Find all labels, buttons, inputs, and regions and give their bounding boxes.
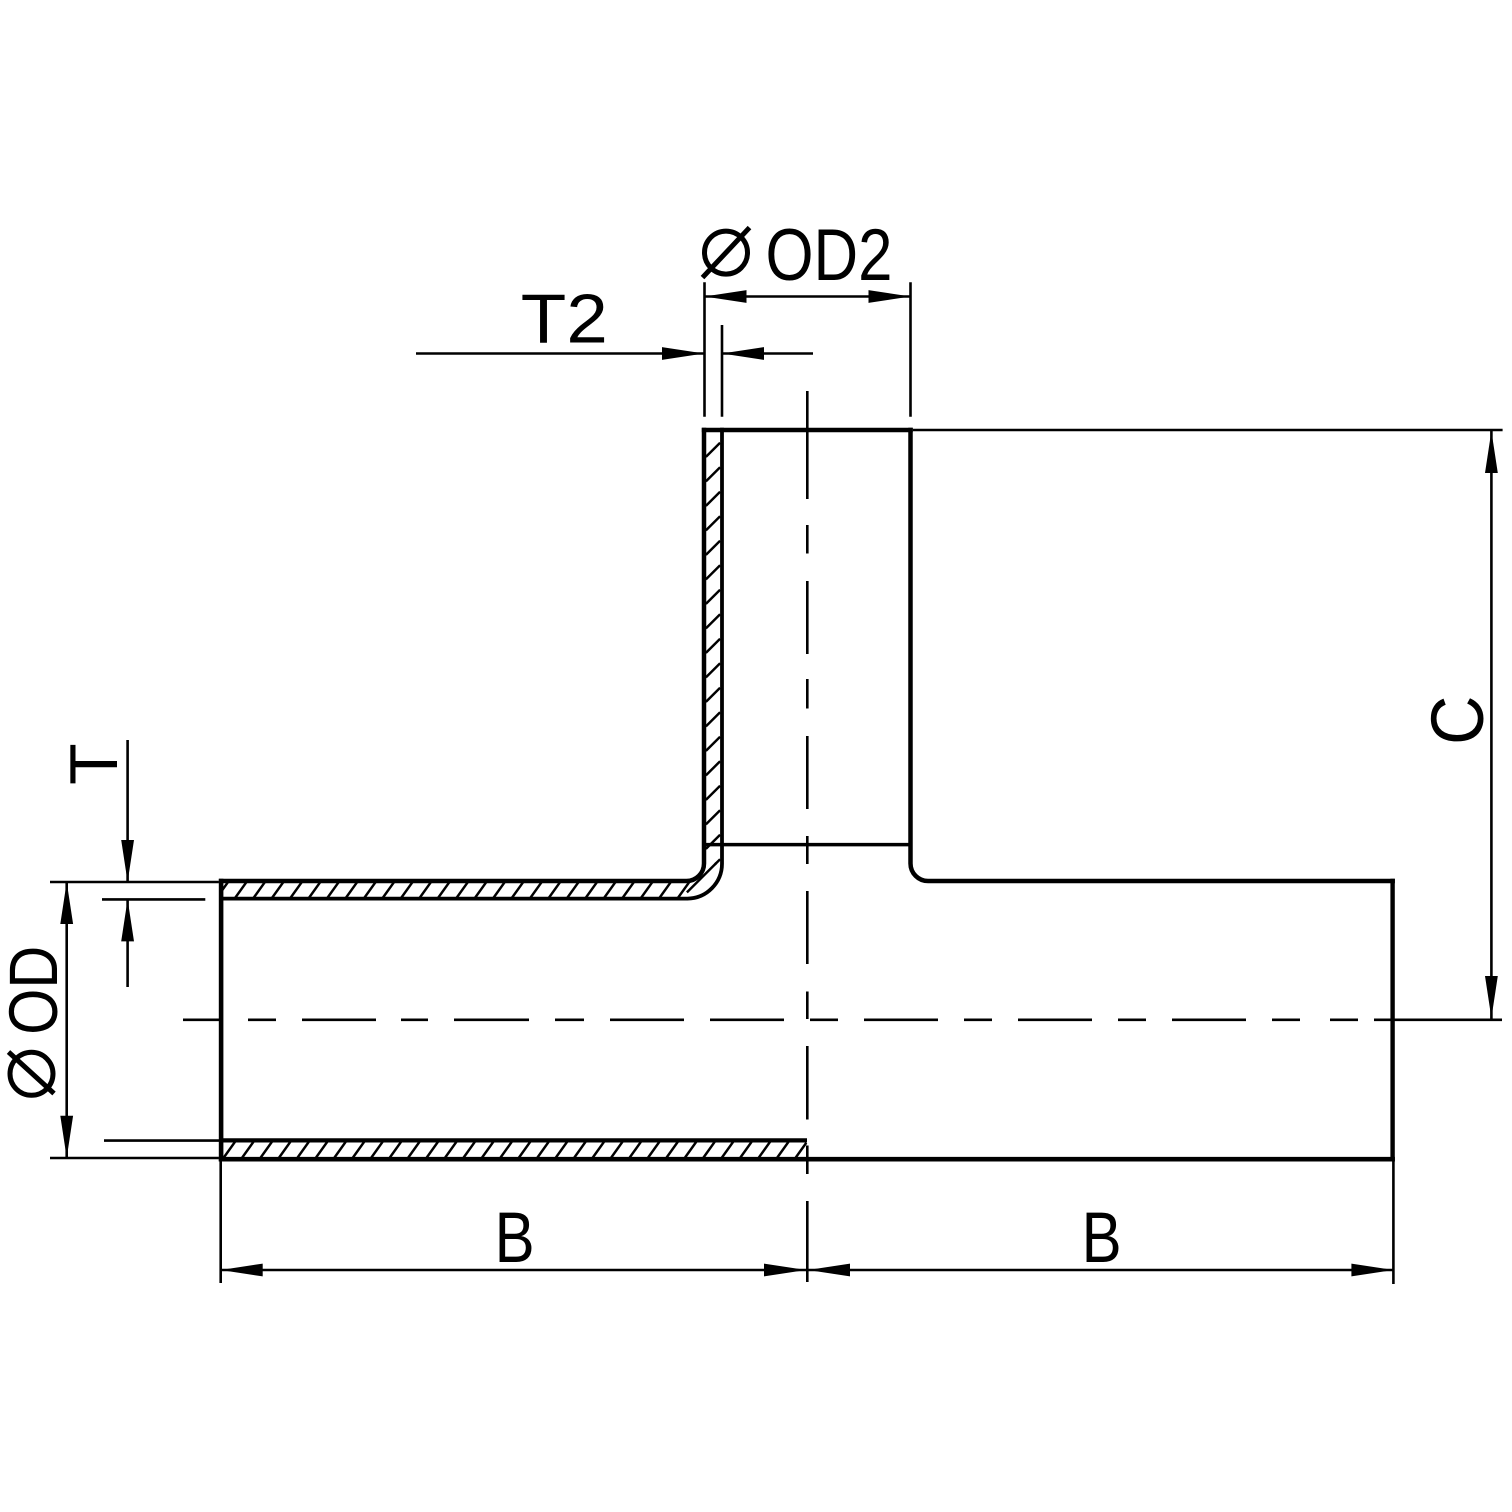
svg-text:T: T	[56, 743, 132, 785]
svg-text:C: C	[1416, 696, 1499, 745]
svg-text:OD2: OD2	[766, 214, 893, 296]
svg-text:B: B	[1082, 1198, 1122, 1277]
svg-text:B: B	[495, 1198, 535, 1277]
svg-text:OD: OD	[0, 946, 72, 1035]
svg-text:T2: T2	[521, 279, 608, 357]
